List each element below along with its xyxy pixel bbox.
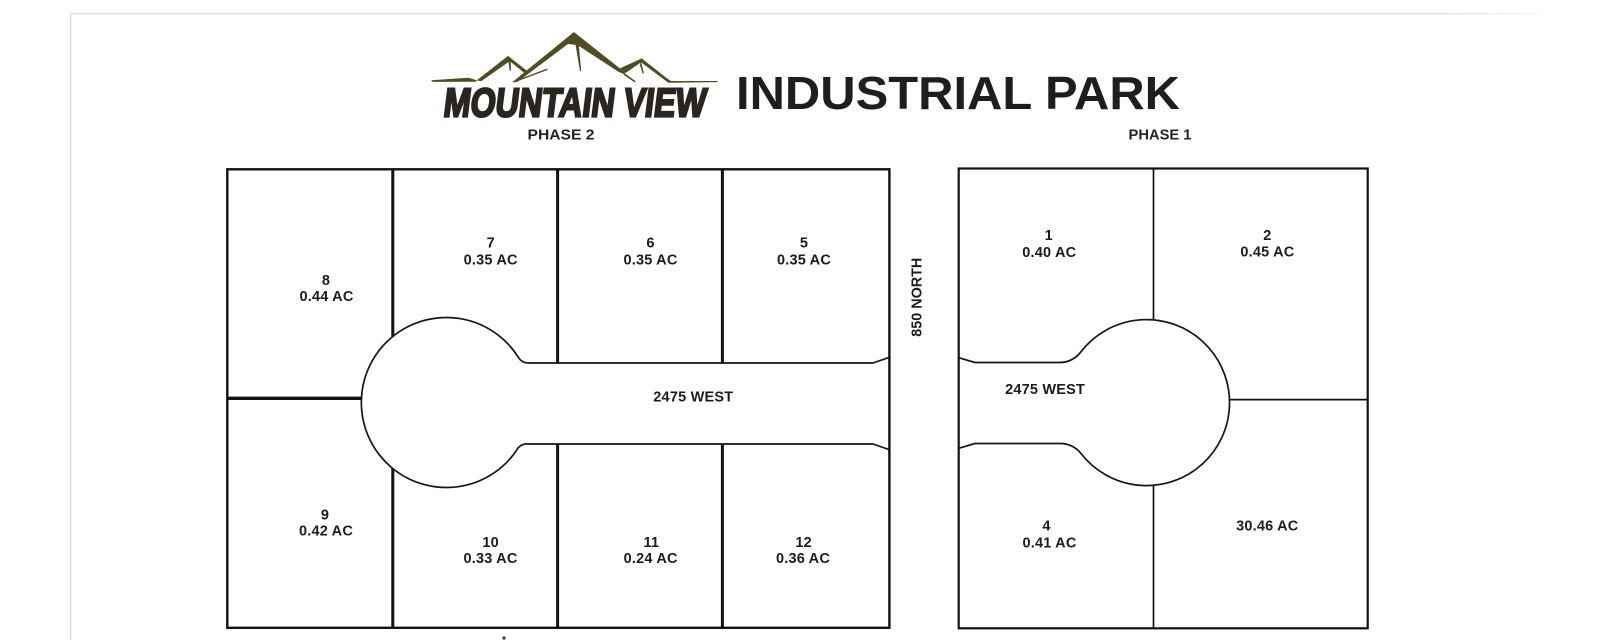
svg-text:30.46 AC: 30.46 AC [1236,519,1299,535]
svg-text:850 NORTH: 850 NORTH [910,258,926,337]
svg-text:MOUNTAIN VIEW: MOUNTAIN VIEW [441,80,709,126]
svg-text:0.45 AC: 0.45 AC [1240,245,1294,261]
svg-text:2475 WEST: 2475 WEST [653,390,733,406]
svg-text:0.35 AC: 0.35 AC [777,252,831,268]
svg-text:7: 7 [487,236,495,252]
svg-text:0.41 AC: 0.41 AC [1022,535,1076,551]
svg-text:10: 10 [482,535,499,551]
svg-text:0.40 AC: 0.40 AC [1022,245,1076,261]
svg-text:6: 6 [646,236,654,252]
svg-text:0.42 AC: 0.42 AC [299,524,353,540]
svg-text:1: 1 [1045,228,1053,244]
svg-text:0.35 AC: 0.35 AC [464,252,518,268]
svg-text:PHASE 2: PHASE 2 [528,127,595,144]
svg-text:0.33 AC: 0.33 AC [463,551,517,567]
svg-text:0.36 AC: 0.36 AC [776,551,830,567]
svg-text:PHASE 1: PHASE 1 [1129,127,1192,144]
svg-text:0.44 AC: 0.44 AC [299,289,353,305]
svg-text:5: 5 [800,236,808,252]
svg-text:0.24 AC: 0.24 AC [624,551,678,567]
svg-text:11: 11 [644,535,660,551]
svg-text:2475 WEST: 2475 WEST [1005,382,1085,398]
svg-text:9: 9 [321,508,329,524]
svg-text:0.35 AC: 0.35 AC [623,252,677,268]
svg-text:2: 2 [1263,228,1271,244]
svg-text:12: 12 [795,535,812,551]
svg-text:4: 4 [1042,519,1050,535]
svg-text:INDUSTRIAL PARK: INDUSTRIAL PARK [736,67,1180,119]
svg-text:8: 8 [322,273,330,289]
